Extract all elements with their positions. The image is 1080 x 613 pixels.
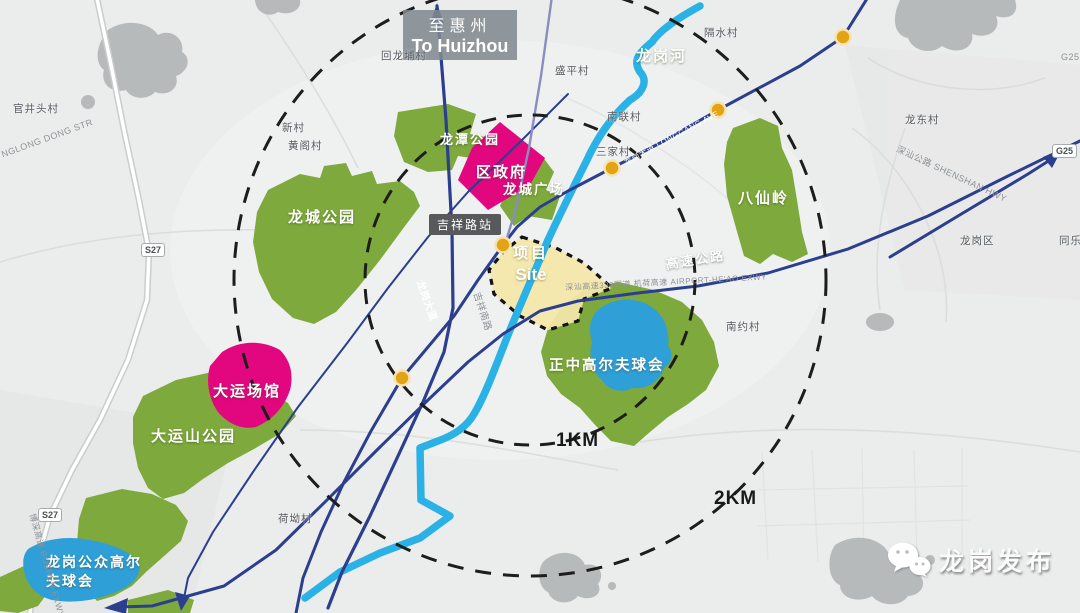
site-label-en: Site — [492, 264, 570, 285]
station-dot — [836, 30, 851, 45]
watermark: 龙岗发布 — [886, 541, 1055, 579]
watermark-text: 龙岗发布 — [939, 542, 1055, 578]
station-dot — [605, 161, 620, 176]
radius-1km-label: 1KM — [556, 430, 599, 452]
radius-2km-label: 2KM — [714, 488, 757, 510]
wechat-icon — [886, 541, 932, 579]
station-dot — [711, 103, 726, 118]
badge-g25: G25 — [1052, 144, 1077, 158]
to-huizhou-label: 至惠州 To Huizhou — [403, 10, 517, 60]
to-huizhou-en: To Huizhou — [403, 36, 517, 57]
to-huizhou-zh: 至惠州 — [403, 12, 517, 36]
map-shapes-layer — [0, 0, 1080, 613]
badge-s27-south: S27 — [38, 508, 62, 522]
badge-s27: S27 — [141, 243, 165, 257]
site-label-zh: 项目 — [492, 245, 570, 264]
jixiang-station-label: 吉祥路站 — [429, 214, 501, 235]
site-label: 项目 Site — [492, 245, 570, 285]
map-canvas: 至惠州 To Huizhou 龙岗河 龙潭公园 区政府 龙城广场 龙城公园 八仙… — [0, 0, 1080, 613]
station-dot — [395, 371, 410, 386]
